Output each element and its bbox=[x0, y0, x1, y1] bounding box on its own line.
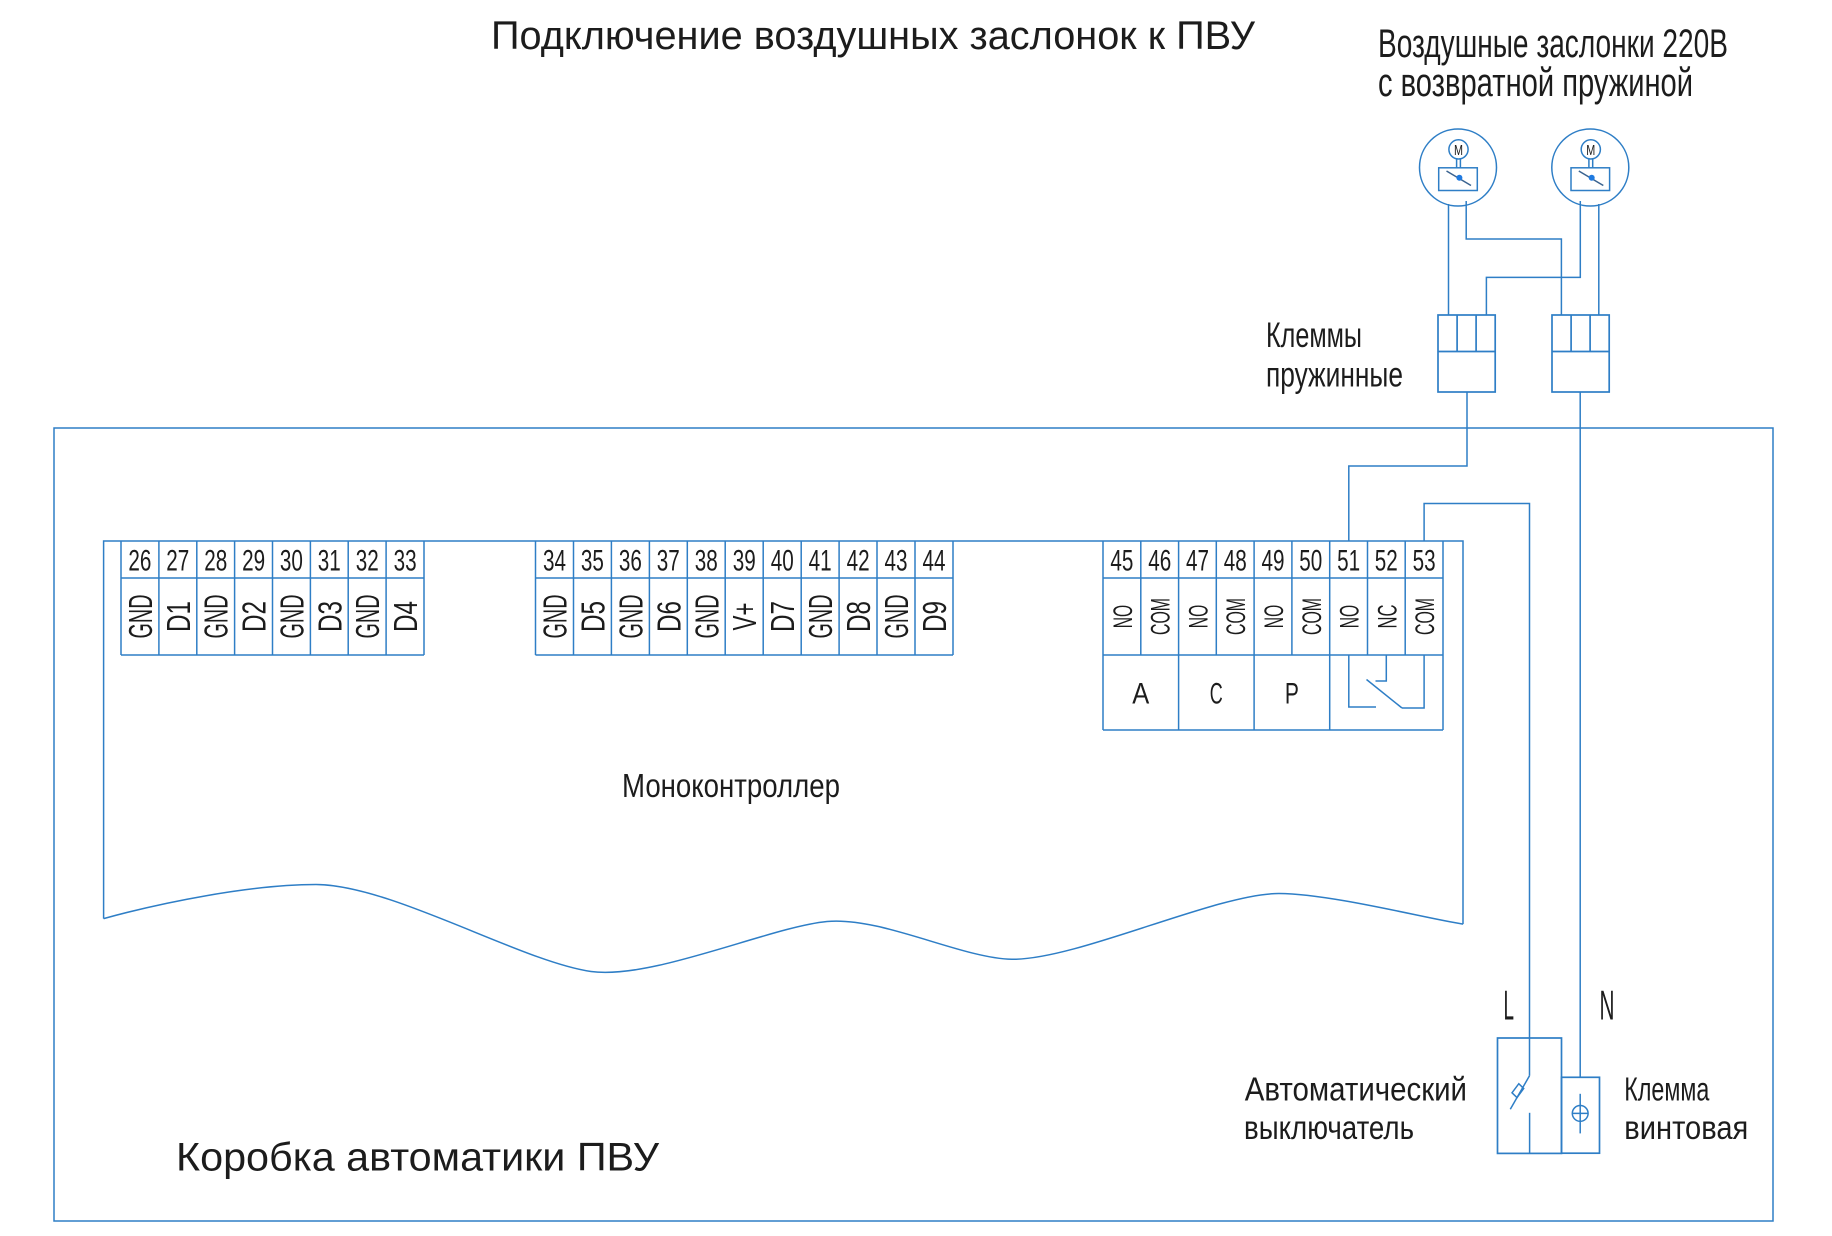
svg-text:40: 40 bbox=[771, 545, 794, 578]
svg-text:D8: D8 bbox=[840, 601, 877, 632]
svg-text:GND: GND bbox=[273, 595, 310, 639]
svg-text:NC: NC bbox=[1372, 605, 1402, 629]
svg-text:D2: D2 bbox=[236, 601, 273, 632]
svg-text:винтовая: винтовая bbox=[1624, 1109, 1748, 1146]
svg-text:39: 39 bbox=[733, 545, 756, 578]
svg-text:GND: GND bbox=[688, 595, 725, 639]
svg-text:D5: D5 bbox=[574, 601, 611, 632]
svg-text:33: 33 bbox=[394, 545, 417, 578]
svg-text:37: 37 bbox=[657, 545, 680, 578]
svg-text:49: 49 bbox=[1262, 545, 1285, 578]
svg-text:34: 34 bbox=[543, 545, 566, 578]
svg-text:NO: NO bbox=[1184, 605, 1214, 629]
svg-text:Клемма: Клемма bbox=[1624, 1071, 1709, 1108]
svg-text:Подключение воздушных заслонок: Подключение воздушных заслонок к ПВУ bbox=[491, 14, 1256, 58]
svg-text:28: 28 bbox=[204, 545, 227, 578]
svg-text:A: A bbox=[1132, 678, 1149, 711]
svg-text:53: 53 bbox=[1413, 545, 1436, 578]
svg-text:NO: NO bbox=[1108, 605, 1138, 629]
svg-text:M: M bbox=[1586, 142, 1595, 159]
svg-text:COM: COM bbox=[1146, 598, 1176, 635]
svg-text:D9: D9 bbox=[916, 601, 953, 632]
svg-text:N: N bbox=[1600, 982, 1615, 1029]
svg-text:D7: D7 bbox=[764, 601, 801, 632]
svg-text:31: 31 bbox=[318, 545, 341, 578]
svg-text:GND: GND bbox=[198, 595, 235, 639]
svg-text:GND: GND bbox=[878, 595, 915, 639]
svg-text:пружинные: пружинные bbox=[1266, 356, 1403, 395]
svg-text:32: 32 bbox=[356, 545, 379, 578]
svg-text:48: 48 bbox=[1224, 545, 1247, 578]
svg-text:Автоматический: Автоматический bbox=[1245, 1071, 1467, 1108]
svg-text:29: 29 bbox=[242, 545, 265, 578]
svg-text:GND: GND bbox=[122, 595, 159, 639]
svg-text:30: 30 bbox=[280, 545, 303, 578]
svg-text:P: P bbox=[1285, 678, 1299, 711]
svg-text:GND: GND bbox=[349, 595, 386, 639]
svg-text:50: 50 bbox=[1299, 545, 1322, 578]
svg-text:NO: NO bbox=[1259, 605, 1289, 629]
svg-text:D1: D1 bbox=[160, 601, 197, 632]
svg-text:D6: D6 bbox=[650, 601, 687, 632]
svg-text:GND: GND bbox=[612, 595, 649, 639]
svg-text:L: L bbox=[1504, 982, 1515, 1029]
svg-text:COM: COM bbox=[1221, 598, 1251, 635]
svg-text:C: C bbox=[1210, 678, 1223, 711]
svg-text:Клеммы: Клеммы bbox=[1266, 316, 1362, 355]
svg-text:42: 42 bbox=[847, 545, 870, 578]
svg-text:38: 38 bbox=[695, 545, 718, 578]
svg-text:GND: GND bbox=[537, 595, 574, 639]
svg-text:GND: GND bbox=[802, 595, 839, 639]
svg-text:COM: COM bbox=[1410, 598, 1440, 635]
svg-text:41: 41 bbox=[809, 545, 832, 578]
svg-text:26: 26 bbox=[128, 545, 151, 578]
svg-text:27: 27 bbox=[166, 545, 189, 578]
svg-text:44: 44 bbox=[923, 545, 946, 578]
svg-text:46: 46 bbox=[1148, 545, 1171, 578]
svg-text:M: M bbox=[1454, 142, 1463, 159]
svg-text:D3: D3 bbox=[311, 601, 348, 632]
svg-text:52: 52 bbox=[1375, 545, 1398, 578]
svg-text:V+: V+ bbox=[726, 603, 763, 631]
svg-text:35: 35 bbox=[581, 545, 604, 578]
svg-text:47: 47 bbox=[1186, 545, 1209, 578]
svg-text:36: 36 bbox=[619, 545, 642, 578]
svg-text:с возвратной пружиной: с возвратной пружиной bbox=[1378, 61, 1693, 105]
svg-text:NO: NO bbox=[1335, 605, 1365, 629]
svg-text:43: 43 bbox=[885, 545, 908, 578]
svg-text:D4: D4 bbox=[387, 601, 424, 632]
svg-text:45: 45 bbox=[1110, 545, 1133, 578]
svg-text:Коробка автоматики ПВУ: Коробка автоматики ПВУ bbox=[176, 1136, 660, 1180]
svg-text:COM: COM bbox=[1297, 598, 1327, 635]
svg-text:Воздушные заслонки 220В: Воздушные заслонки 220В bbox=[1378, 22, 1728, 66]
svg-text:выключатель: выключатель bbox=[1244, 1109, 1414, 1146]
svg-text:51: 51 bbox=[1337, 545, 1360, 578]
svg-text:Моноконтроллер: Моноконтроллер bbox=[622, 767, 840, 804]
